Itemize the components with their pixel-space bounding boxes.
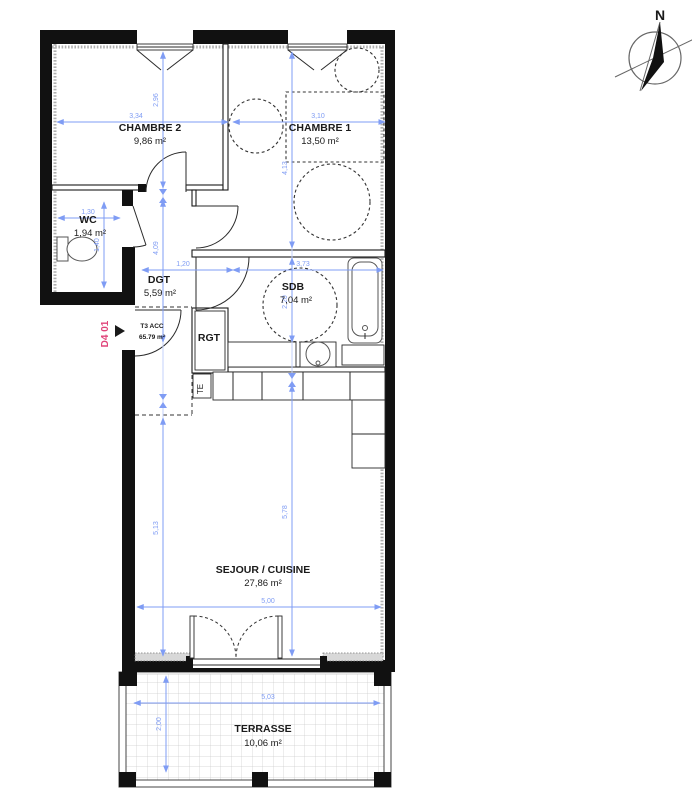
- room-labels: CHAMBRE 2 9,86 m² CHAMBRE 1 13,50 m² WC …: [74, 122, 351, 749]
- bathtub: [348, 258, 382, 343]
- terrasse-post: [374, 772, 391, 787]
- room-chambre2-name: CHAMBRE 2: [119, 122, 182, 134]
- te-label: TE: [196, 384, 205, 394]
- room-wc-area: 1,94 m²: [74, 228, 106, 239]
- room-sejour-name: SEJOUR / CUISINE: [216, 564, 311, 576]
- room-dgt-name: DGT: [148, 274, 171, 286]
- kitchen-counter: [213, 372, 385, 468]
- dim-sdb-width: 3,73: [296, 261, 310, 268]
- compass: N: [615, 7, 692, 91]
- dim-sejour-height-right: 5,78: [282, 505, 289, 519]
- terrasse-post: [119, 672, 137, 686]
- room-terrasse-area: 10,06 m²: [244, 738, 282, 749]
- floor-plan-page: 3,34 3,10 1,30 1,20 3,73 5,00 5,03 2,96 …: [0, 0, 692, 800]
- terrasse-post: [374, 672, 391, 686]
- dim-sejour-height-left: 5,13: [153, 521, 160, 535]
- dim-terrasse-height: 2,00: [156, 717, 163, 731]
- room-chambre2-area: 9,86 m²: [134, 136, 166, 147]
- terrasse-post: [119, 772, 136, 787]
- room-wc-name: WC: [79, 214, 97, 226]
- room-rgt-name: RGT: [198, 332, 221, 344]
- entry-arrow-icon: [115, 325, 125, 337]
- room-sejour-area: 27,86 m²: [244, 578, 282, 589]
- toilet: [57, 237, 97, 261]
- dim-chambre2-width: 3,34: [129, 113, 143, 120]
- terrasse-post: [252, 772, 268, 787]
- unit-tag-label: D4 01: [100, 320, 111, 347]
- dim-chambre1-height: 4,13: [282, 161, 289, 175]
- door-wc: [133, 245, 146, 247]
- dim-sejour-width: 5,00: [261, 598, 275, 605]
- unit-type-area: 65.79 m²: [139, 334, 166, 341]
- room-dgt-area: 5,59 m²: [144, 288, 176, 299]
- dim-chambre2-height: 2,96: [153, 93, 160, 107]
- room-sdb-name: SDB: [282, 281, 305, 293]
- room-chambre1-area: 13,50 m²: [301, 136, 339, 147]
- dim-chambre1-width: 3,10: [311, 113, 325, 120]
- door-entry: [135, 310, 181, 356]
- dim-terrasse-width: 5,03: [261, 694, 275, 701]
- room-chambre1-name: CHAMBRE 1: [289, 122, 352, 134]
- unit-type-code: T3 ACC: [140, 323, 164, 330]
- dim-dgt-passage: 1,20: [176, 261, 190, 268]
- room-sdb-area: 7,04 m²: [280, 295, 312, 306]
- french-door-threshold: [188, 656, 325, 668]
- door-chambre2: [146, 152, 186, 192]
- door-sdb: [196, 257, 249, 310]
- unit-tag: D4 01: [100, 320, 125, 347]
- door-chambre1: [196, 206, 238, 248]
- washer-slot: [342, 345, 384, 365]
- french-door: [190, 616, 282, 658]
- dim-wc-height: 1,40: [94, 238, 101, 252]
- dim-dgt-height: 4,09: [153, 241, 160, 255]
- window-sejour-right: [323, 653, 383, 661]
- floor-plan-drawing: 3,34 3,10 1,30 1,20 3,73 5,00 5,03 2,96 …: [0, 0, 692, 800]
- room-terrasse-name: TERRASSE: [234, 723, 291, 735]
- sink: [300, 342, 336, 367]
- north-label: N: [655, 7, 665, 23]
- vanity: [228, 342, 296, 367]
